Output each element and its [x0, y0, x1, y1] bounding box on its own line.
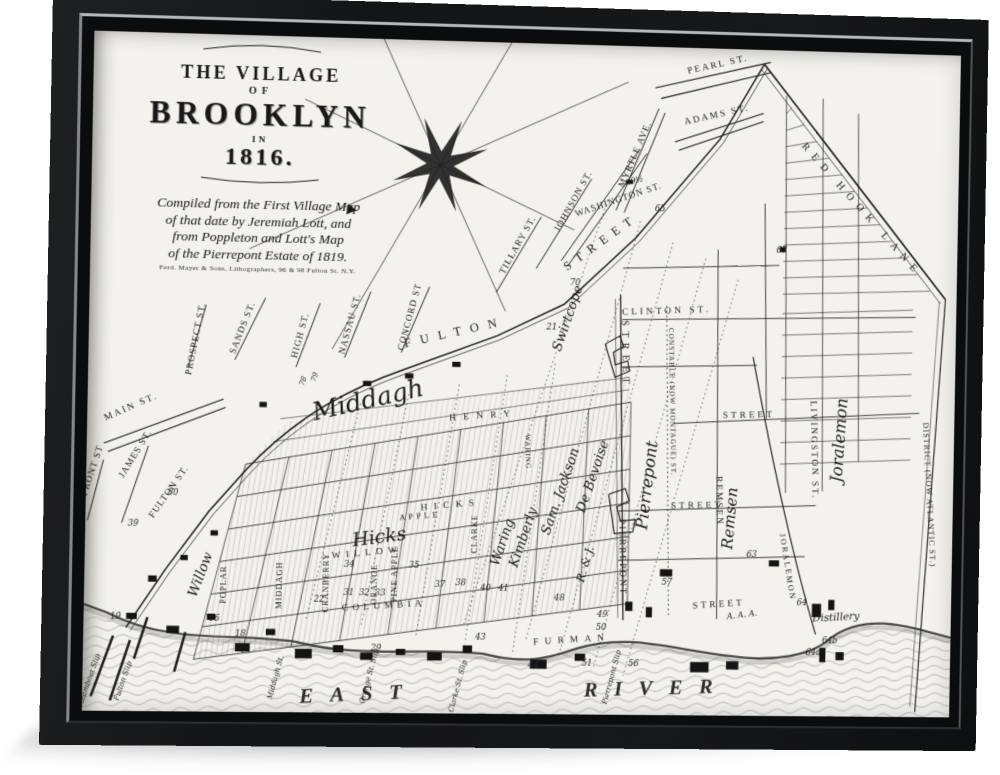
map-label: LIVINGSTON ST. — [808, 401, 819, 500]
lot-number: 40 — [479, 583, 491, 593]
building — [625, 602, 632, 611]
lot-number: 33 — [375, 588, 386, 598]
lot-number: 16 — [209, 613, 221, 623]
lot-number: 37 — [434, 579, 445, 589]
lot-number: 41 — [497, 583, 509, 593]
building — [235, 643, 250, 651]
map-label: MAIN ST. — [103, 391, 160, 423]
building — [126, 613, 137, 619]
lot-number: 43 — [474, 631, 486, 641]
building — [690, 662, 709, 672]
building — [769, 560, 779, 566]
lot-number: 79 — [309, 371, 321, 383]
map-label: JOHNSON ST. — [553, 169, 595, 233]
map-canvas: PEARL ST.ADAMS ST.RED HOOK LANEMYRTLE AV… — [82, 31, 961, 718]
lot-number: 70 — [570, 277, 581, 287]
building — [726, 661, 738, 669]
map-label: STREET — [671, 501, 723, 512]
map-label: MIDDAGH — [274, 561, 284, 609]
lot-number: 44 — [527, 660, 539, 670]
building — [180, 555, 188, 560]
lot-number: 49 — [596, 609, 608, 619]
building — [166, 626, 179, 633]
building — [259, 402, 266, 407]
lot-number: 64a — [805, 647, 820, 657]
lot-number: 50 — [596, 622, 607, 632]
lot-number: 29 — [370, 643, 383, 653]
map-label: PIERREPONT — [616, 519, 627, 596]
map-label: STREET — [619, 320, 631, 389]
map-label: ADAMS ST. — [684, 103, 751, 127]
map-svg: PEARL ST.ADAMS ST.RED HOOK LANEMYRTLE AV… — [82, 31, 961, 718]
building — [396, 649, 406, 655]
map-label: Distillery — [811, 610, 860, 625]
map-label: NASSAU ST. — [337, 293, 363, 356]
map-label: Pierrepont — [632, 439, 662, 531]
map-label: Joralemon — [827, 397, 852, 486]
map-label: CLARKE — [470, 514, 480, 553]
map-label: RED HOOK LANE — [799, 141, 924, 279]
lot-number: 38 — [455, 577, 466, 587]
map-label: CLINTON ST. — [622, 305, 711, 318]
map-label: WARING — [523, 434, 533, 469]
map-label: Swirtcope — [549, 283, 587, 353]
building — [148, 575, 157, 581]
building — [835, 652, 843, 660]
lot-number: 80 — [168, 487, 180, 497]
map-label: CRANBERRY — [321, 553, 331, 613]
lot-number: 67 — [776, 245, 787, 255]
frame-opening: PEARL ST.ADAMS ST.RED HOOK LANEMYRTLE AV… — [66, 13, 973, 729]
framed-canvas-print: PEARL ST.ADAMS ST.RED HOOK LANEMYRTLE AV… — [39, 0, 989, 751]
building — [210, 530, 218, 535]
building — [427, 652, 442, 660]
map-label: TILLARY ST. — [498, 215, 538, 276]
map-label: SANDS ST. — [228, 301, 257, 356]
lot-number: 21 — [545, 322, 557, 332]
lot-number: 18 — [235, 628, 246, 638]
building — [452, 362, 460, 367]
lot-number: 64b — [822, 635, 838, 645]
lot-number: 34 — [344, 559, 355, 569]
map-label: FULTON — [403, 314, 508, 351]
lot-number: 57 — [662, 577, 673, 587]
lot-number: 65 — [655, 203, 666, 213]
building — [463, 645, 473, 652]
map-label: PINE APPLE — [390, 546, 400, 602]
lot-number: 78 — [297, 375, 309, 387]
map-label: ORANGE — [370, 564, 380, 605]
map-label: CONSTABLE (NOW MONTAGUE) ST. — [667, 328, 678, 476]
lot-number: 39 — [128, 518, 140, 528]
lot-number: 56 — [628, 659, 639, 669]
building — [646, 607, 652, 617]
building — [333, 645, 344, 652]
lot-number: 64 — [797, 598, 808, 608]
lot-number: 51 — [582, 658, 593, 668]
map-label: POPLAR — [219, 565, 229, 603]
product-photo: PEARL ST.ADAMS ST.RED HOOK LANEMYRTLE AV… — [0, 0, 1000, 775]
lot-number: 22 — [313, 593, 325, 603]
map-label: FRONT ST — [82, 444, 106, 497]
building — [295, 649, 312, 659]
building — [828, 600, 834, 610]
float-frame: PEARL ST.ADAMS ST.RED HOOK LANEMYRTLE AV… — [39, 0, 989, 751]
building — [660, 569, 672, 576]
map-label: HIGH ST. — [290, 312, 312, 360]
lot-number: 32 — [359, 588, 370, 598]
map-label: RIVER — [583, 674, 730, 701]
lot-number: 19 — [110, 611, 122, 621]
lot-number: 31 — [343, 587, 354, 597]
building — [266, 629, 276, 635]
lot-number: 48 — [553, 593, 565, 603]
map-label: A. A. A. — [725, 608, 758, 622]
lot-number: 35 — [409, 560, 420, 570]
map-label: PROSPECT ST. — [184, 302, 208, 376]
map-label: STREET — [723, 410, 775, 421]
map-label: JORALEMON — [778, 533, 797, 601]
lot-number: 63 — [746, 549, 757, 559]
map-label: PEARL ST. — [687, 54, 750, 77]
